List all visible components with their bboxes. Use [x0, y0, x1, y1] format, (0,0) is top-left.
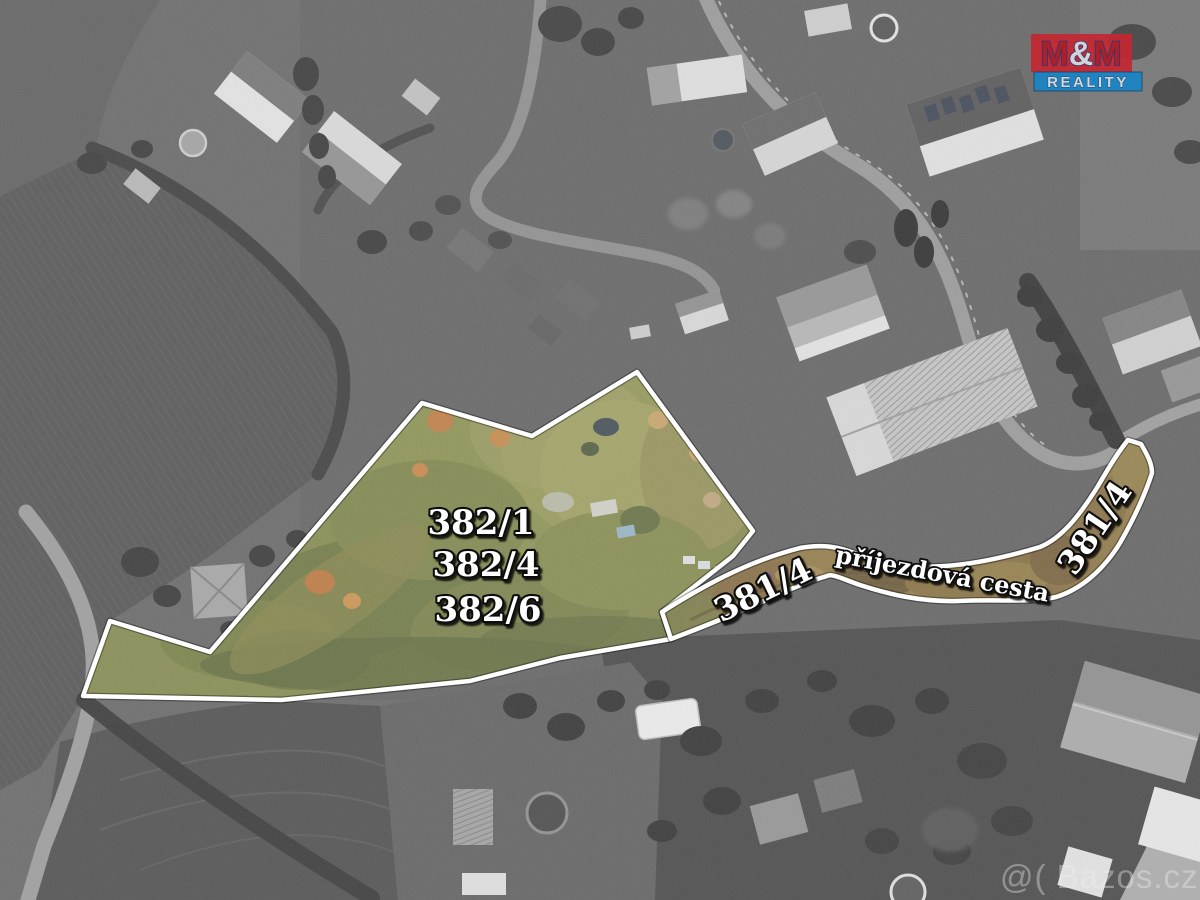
- parcel-label-382-4: 382/4: [432, 545, 539, 585]
- real-estate-aerial-listing-image: 382/1 382/4 382/6 381/4 381/4 příjezdová…: [0, 0, 1200, 900]
- parcel-label-382-1: 382/1: [427, 503, 534, 543]
- bazos-watermark: @( Bazos.cz: [1000, 858, 1199, 895]
- aerial-photo-canvas: 382/1 382/4 382/6 381/4 381/4 příjezdová…: [0, 0, 1200, 900]
- logo-mm-text: M&M: [1040, 35, 1121, 73]
- parcel-label-382-6: 382/6: [434, 590, 541, 630]
- mm-reality-logo: M&M REALITY: [1031, 34, 1142, 91]
- logo-reality-text: REALITY: [1047, 74, 1129, 91]
